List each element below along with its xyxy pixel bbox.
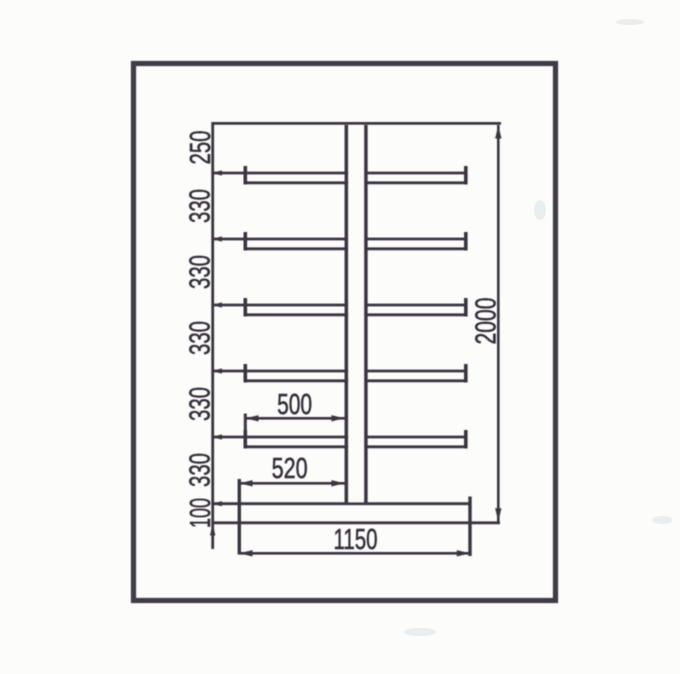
svg-text:520: 520 [272, 453, 308, 485]
svg-text:330: 330 [185, 255, 217, 289]
svg-text:100: 100 [185, 498, 217, 528]
svg-text:250: 250 [185, 131, 217, 165]
svg-text:330: 330 [185, 453, 217, 487]
svg-text:330: 330 [185, 321, 217, 355]
svg-text:500: 500 [277, 389, 312, 421]
svg-text:1150: 1150 [334, 524, 378, 556]
svg-text:330: 330 [185, 387, 217, 421]
svg-text:2000: 2000 [470, 298, 502, 345]
svg-text:330: 330 [185, 189, 217, 223]
